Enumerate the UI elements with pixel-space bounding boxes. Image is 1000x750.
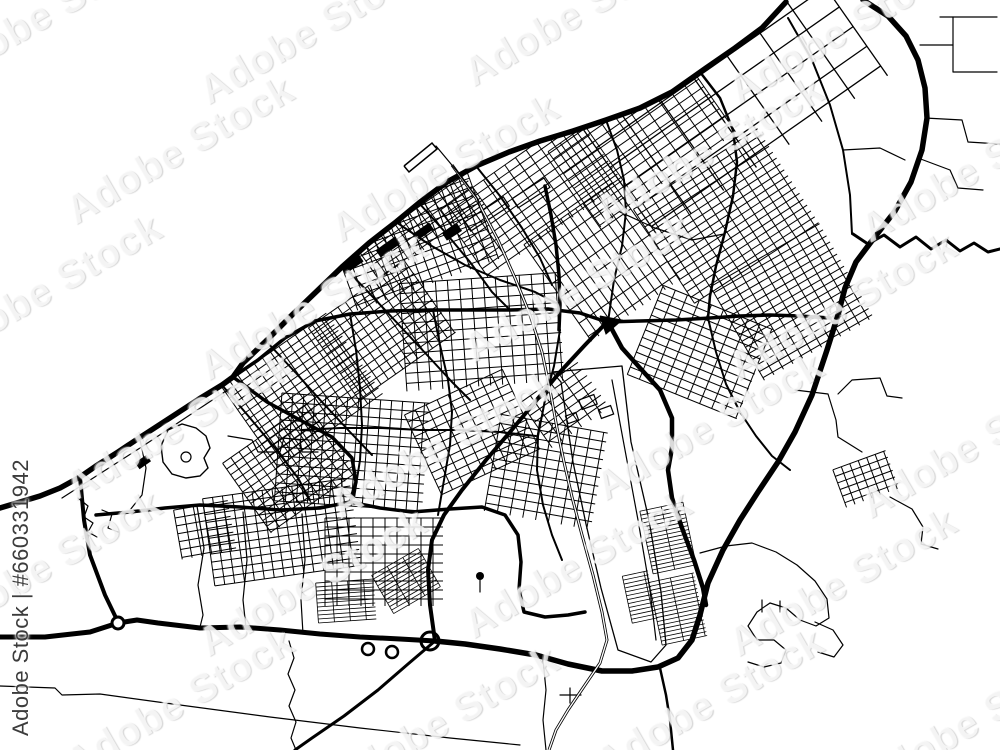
street-grid-cluster xyxy=(203,478,362,586)
street-grid-cluster xyxy=(633,129,818,304)
street-grid-cluster xyxy=(710,224,873,381)
road-junction xyxy=(181,452,191,462)
watermark-id-label: Adobe Stock | #660331942 xyxy=(8,459,34,736)
airport-perimeter xyxy=(552,366,666,662)
city-road-map xyxy=(0,0,1000,750)
road-junction xyxy=(112,617,124,629)
port-block xyxy=(135,455,151,470)
dock-outline xyxy=(512,178,550,208)
road-junction xyxy=(386,646,398,658)
street-grid-cluster xyxy=(399,273,564,392)
street-grid-cluster xyxy=(649,573,707,645)
street-grid-cluster xyxy=(833,451,899,508)
road-junction xyxy=(476,572,484,580)
road-junction xyxy=(362,643,374,655)
street-grid-cluster xyxy=(622,571,657,623)
dock-outline xyxy=(579,395,597,410)
stock-map-preview: Adobe StockAdobe StockAdobe StockAdobe S… xyxy=(0,0,1000,750)
lake-outline xyxy=(161,424,210,478)
